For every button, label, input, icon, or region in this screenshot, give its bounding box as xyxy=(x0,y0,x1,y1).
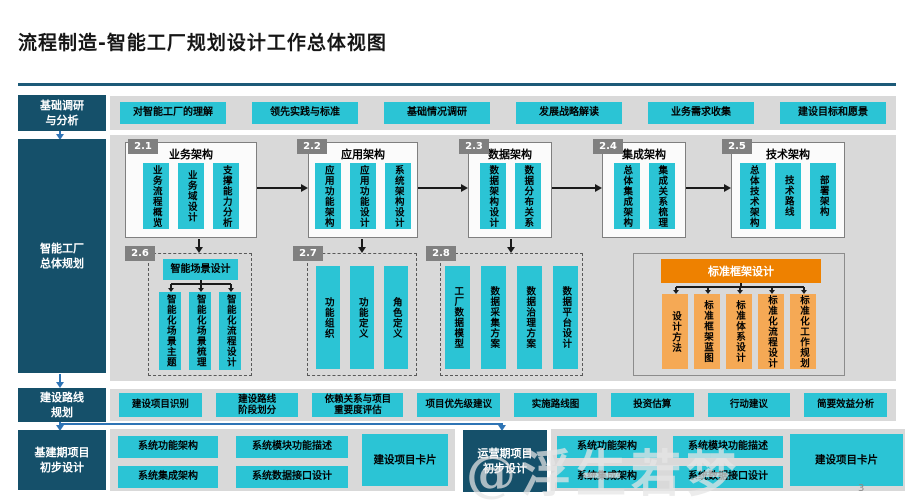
slide: 流程制造-智能工厂规划设计工作总体视图 基础调研 与分析 对智能工厂的理解 领先… xyxy=(0,0,914,500)
right-arrow-icon xyxy=(724,184,731,192)
standard-item: 标准化流程设计 xyxy=(758,294,784,369)
design-item: 系统模块功能描述 xyxy=(236,436,348,458)
panel-data-arch: 数据架构 数据架构设计 数据分布关系 xyxy=(468,142,552,238)
scene-header: 智能场景设计 xyxy=(163,259,238,280)
page-number: 3 xyxy=(858,483,864,494)
connector-line xyxy=(59,374,61,382)
work-item: 数据分布关系 xyxy=(515,163,541,229)
survey-item: 对智能工厂的理解 xyxy=(120,102,226,124)
work-item: 集成关系梳理 xyxy=(649,163,675,229)
roadmap-row-background: 建设项目识别 建设路线 阶段划分 依赖关系与项目 重要度评估 项目优先级建议 实… xyxy=(110,389,896,421)
roadmap-item: 建设项目识别 xyxy=(119,393,202,417)
survey-item: 建设目标和愿景 xyxy=(780,102,886,124)
roadmap-item: 投资估算 xyxy=(611,393,694,417)
sidebar-roadmap: 建设路线 规划 xyxy=(18,388,106,422)
connector-line xyxy=(60,423,503,425)
work-item: 应用功能设计 xyxy=(350,163,376,229)
panel-badge: 2.5 xyxy=(722,139,752,154)
connector-line xyxy=(361,239,363,247)
roadmap-item: 依赖关系与项目 重要度评估 xyxy=(312,393,403,417)
connector-line xyxy=(686,187,724,189)
panel-technology-arch: 技术架构 总体技术架构 技术路线 部署架构 xyxy=(731,142,845,238)
right-arrow-icon xyxy=(301,184,308,192)
panel-badge: 2.8 xyxy=(426,246,456,261)
design-item: 系统数据接口设计 xyxy=(236,466,348,488)
design-item: 系统功能架构 xyxy=(118,436,218,458)
sidebar-operation: 运营期项目 初步设计 xyxy=(463,430,547,492)
design-item: 系统功能架构 xyxy=(557,436,657,458)
sidebar-survey: 基础调研 与分析 xyxy=(18,95,106,131)
sidebar-construction: 基建期项目 初步设计 xyxy=(18,430,106,490)
work-item: 功能定义 xyxy=(350,266,374,369)
design-item: 系统模块功能描述 xyxy=(673,436,783,458)
design-item: 系统数据接口设计 xyxy=(673,466,783,488)
survey-item: 业务需求收集 xyxy=(648,102,754,124)
work-item: 智能化流程设计 xyxy=(219,292,241,370)
connector-line xyxy=(198,239,200,247)
panel-function-design: 功能组织 功能定义 角色定义 xyxy=(307,253,417,376)
panel-data-design: 工厂数据模型 数据采集方案 数据治理方案 数据平台设计 xyxy=(440,253,583,376)
project-card: 建设项目卡片 xyxy=(362,434,448,486)
panel-standard-framework: 标准框架设计 设计方法 标准框架蓝图 标准体系设计 标准化流程设计 标准化工作规… xyxy=(633,253,845,376)
work-item: 数据架构设计 xyxy=(480,163,506,229)
panel-badge: 2.1 xyxy=(128,139,158,154)
work-item: 业务域设计 xyxy=(178,163,204,229)
work-item: 应用功能架构 xyxy=(315,163,341,229)
branch-connector-icon xyxy=(149,280,253,292)
roadmap-item: 行动建议 xyxy=(708,393,791,417)
panel-badge: 2.4 xyxy=(593,139,623,154)
roadmap-item: 简要效益分析 xyxy=(804,393,887,417)
standard-item: 标准体系设计 xyxy=(726,294,752,369)
panel-badge: 2.7 xyxy=(293,246,323,261)
right-arrow-icon xyxy=(461,184,468,192)
work-item: 功能组织 xyxy=(316,266,340,369)
work-item: 技术路线 xyxy=(775,163,801,229)
branch-connector-icon xyxy=(634,283,846,294)
panel-badge: 2.3 xyxy=(459,139,489,154)
connector-line xyxy=(418,187,461,189)
design-item: 系统集成架构 xyxy=(557,466,657,488)
connector-line xyxy=(510,239,512,247)
panel-badge: 2.2 xyxy=(297,139,327,154)
standard-item: 标准化工作规划 xyxy=(790,294,816,369)
survey-item: 发展战略解读 xyxy=(516,102,622,124)
right-arrow-icon xyxy=(595,184,602,192)
panel-smart-scene: 智能场景设计 智能化场景主题 智能化场景梳理 智能化流程设计 xyxy=(148,253,252,376)
panel-integration-arch: 集成架构 总体集成架构 集成关系梳理 xyxy=(602,142,686,238)
survey-item: 领先实践与标准 xyxy=(252,102,358,124)
connector-line xyxy=(552,187,595,189)
work-item: 工厂数据模型 xyxy=(445,266,470,369)
panel-business-arch: 业务架构 业务流程概览 业务域设计 支撑能力分析 xyxy=(125,142,257,238)
work-item: 智能化场景主题 xyxy=(159,292,181,370)
work-item: 业务流程概览 xyxy=(143,163,169,229)
work-item: 智能化场景梳理 xyxy=(189,292,211,370)
work-item: 数据治理方案 xyxy=(517,266,542,369)
work-item: 系统架构设计 xyxy=(385,163,411,229)
panel-application-arch: 应用架构 应用功能架构 应用功能设计 系统架构设计 xyxy=(308,142,418,238)
standard-item: 标准框架蓝图 xyxy=(694,294,720,369)
standard-item: 设计方法 xyxy=(662,294,688,369)
work-item: 总体技术架构 xyxy=(740,163,766,229)
work-item: 数据平台设计 xyxy=(553,266,578,369)
design-item: 系统集成架构 xyxy=(118,466,218,488)
panel-badge: 2.6 xyxy=(125,246,155,261)
project-card: 建设项目卡片 xyxy=(790,434,903,486)
work-item: 总体集成架构 xyxy=(614,163,640,229)
work-item: 支撑能力分析 xyxy=(213,163,239,229)
title-divider xyxy=(18,83,896,86)
survey-item: 基础情况调研 xyxy=(384,102,490,124)
roadmap-item: 实施路线图 xyxy=(514,393,597,417)
sidebar-planning: 智能工厂 总体规划 xyxy=(18,139,106,373)
work-item: 部署架构 xyxy=(810,163,836,229)
survey-row-background: 对智能工厂的理解 领先实践与标准 基础情况调研 发展战略解读 业务需求收集 建设… xyxy=(110,96,896,130)
connector-line xyxy=(257,187,301,189)
work-item: 数据采集方案 xyxy=(481,266,506,369)
page-title: 流程制造-智能工厂规划设计工作总体视图 xyxy=(18,28,387,55)
work-item: 角色定义 xyxy=(384,266,408,369)
standard-header: 标准框架设计 xyxy=(661,259,821,283)
roadmap-item: 建设路线 阶段划分 xyxy=(216,393,299,417)
roadmap-item: 项目优先级建议 xyxy=(417,393,500,417)
